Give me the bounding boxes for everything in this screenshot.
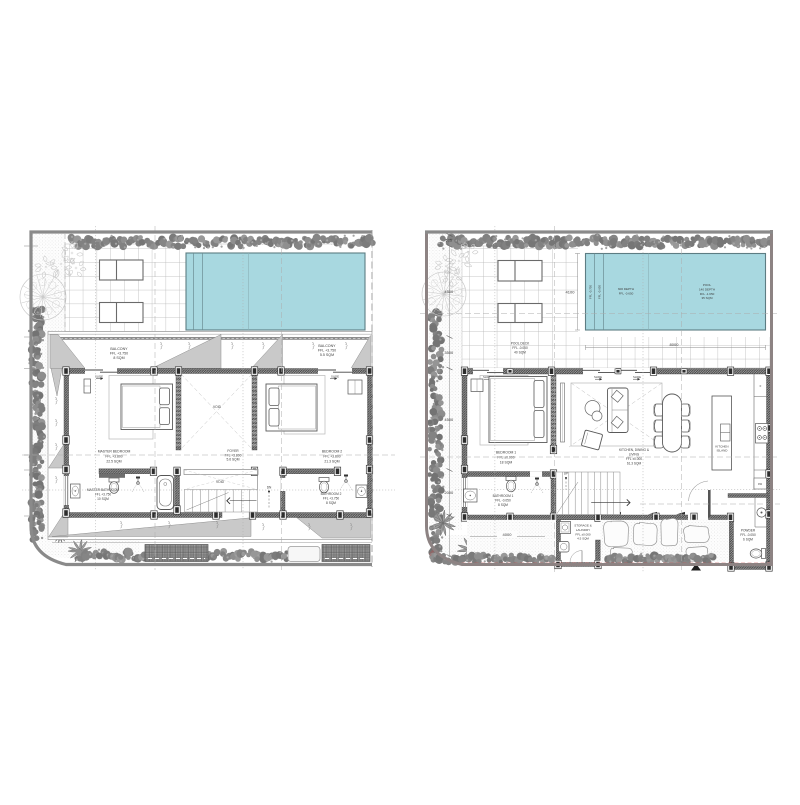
svg-text:SLIDE: SLIDE <box>594 375 602 379</box>
svg-text:POOL DECK: POOL DECK <box>511 342 530 346</box>
svg-text:KITCHEN, DINING &: KITCHEN, DINING & <box>619 448 650 452</box>
svg-text:FFL ±0.000: FFL ±0.000 <box>575 532 591 536</box>
svg-text:5.6 SQM: 5.6 SQM <box>226 458 239 462</box>
svg-text:FFL +3.750: FFL +3.750 <box>318 349 336 353</box>
svg-text:8 SQM: 8 SQM <box>326 501 336 505</box>
svg-text:FFL -0.050: FFL -0.050 <box>740 533 756 537</box>
svg-text:FFL -0.750: FFL -0.750 <box>589 285 593 299</box>
svg-text:35 SQM: 35 SQM <box>701 296 713 300</box>
svg-text:FFL -0.050: FFL -0.050 <box>495 499 511 503</box>
svg-text:LAUNDRY: LAUNDRY <box>576 528 590 532</box>
svg-text:DN: DN <box>267 486 272 490</box>
svg-text:FFL ±0.000: FFL ±0.000 <box>626 457 642 461</box>
svg-text:POOL: POOL <box>703 283 712 287</box>
svg-text:5.5 SQM: 5.5 SQM <box>320 353 334 357</box>
svg-text:BEDROOM 2: BEDROOM 2 <box>322 450 342 454</box>
svg-text:18 SQM: 18 SQM <box>500 460 513 464</box>
svg-text:STORAGE &: STORAGE & <box>574 524 591 528</box>
svg-text:6 SQM: 6 SQM <box>743 538 753 542</box>
svg-text:40 SQM: 40 SQM <box>514 350 526 354</box>
svg-text:8 SQM: 8 SQM <box>498 503 508 507</box>
svg-text:BATHROOM 1: BATHROOM 1 <box>493 494 514 498</box>
svg-text:4500: 4500 <box>444 417 454 422</box>
svg-text:525: 525 <box>445 238 452 243</box>
svg-text:FFL +3.750: FFL +3.750 <box>95 493 111 497</box>
svg-text:21.3 SQM: 21.3 SQM <box>324 459 339 463</box>
svg-text:10 SQM: 10 SQM <box>97 497 109 501</box>
svg-text:LIVING: LIVING <box>629 453 640 457</box>
svg-text:FFL -0.650: FFL -0.650 <box>619 291 634 295</box>
svg-text:FFL +3.750: FFL +3.750 <box>323 497 339 501</box>
svg-text:SLIDE: SLIDE <box>633 375 641 379</box>
svg-text:FFL -1.650: FFL -1.650 <box>700 292 715 296</box>
svg-text:VOID: VOID <box>213 405 222 409</box>
svg-text:F: F <box>760 384 762 388</box>
svg-text:2000: 2000 <box>444 490 454 495</box>
svg-text:FFL -0.650: FFL -0.650 <box>598 285 602 299</box>
svg-text:4100: 4100 <box>566 290 576 295</box>
svg-text:8000: 8000 <box>670 342 680 347</box>
svg-text:3500: 3500 <box>444 350 454 355</box>
svg-text:BALCONY: BALCONY <box>318 344 336 348</box>
svg-text:BATHROOM 2: BATHROOM 2 <box>321 492 342 496</box>
svg-text:FFL -0.050: FFL -0.050 <box>512 346 528 350</box>
svg-text:FFL ±0.000: FFL ±0.000 <box>497 455 514 459</box>
svg-text:BEDROOM 1: BEDROOM 1 <box>496 451 516 455</box>
svg-text:22.5 SQM: 22.5 SQM <box>106 459 121 463</box>
svg-text:ISLAND: ISLAND <box>717 449 729 453</box>
svg-text:VOID: VOID <box>216 480 225 484</box>
svg-text:8 SQM: 8 SQM <box>113 356 124 360</box>
svg-text:FFL +3.750: FFL +3.750 <box>110 352 128 356</box>
svg-text:SLIDE: SLIDE <box>95 374 103 378</box>
svg-text:4500: 4500 <box>444 289 454 294</box>
svg-text:61.3 SQM: 61.3 SQM <box>627 462 642 466</box>
svg-text:140 DEPTH: 140 DEPTH <box>699 287 715 291</box>
svg-text:BALCONY: BALCONY <box>110 347 128 351</box>
svg-text:4.5 SQM: 4.5 SQM <box>577 537 589 541</box>
svg-text:MASTER BEDROOM: MASTER BEDROOM <box>98 450 131 454</box>
svg-text:600 DEPTH: 600 DEPTH <box>618 287 634 291</box>
svg-text:POWDER: POWDER <box>741 529 756 533</box>
svg-text:UP: UP <box>564 472 568 476</box>
svg-text:4000: 4000 <box>503 532 513 537</box>
